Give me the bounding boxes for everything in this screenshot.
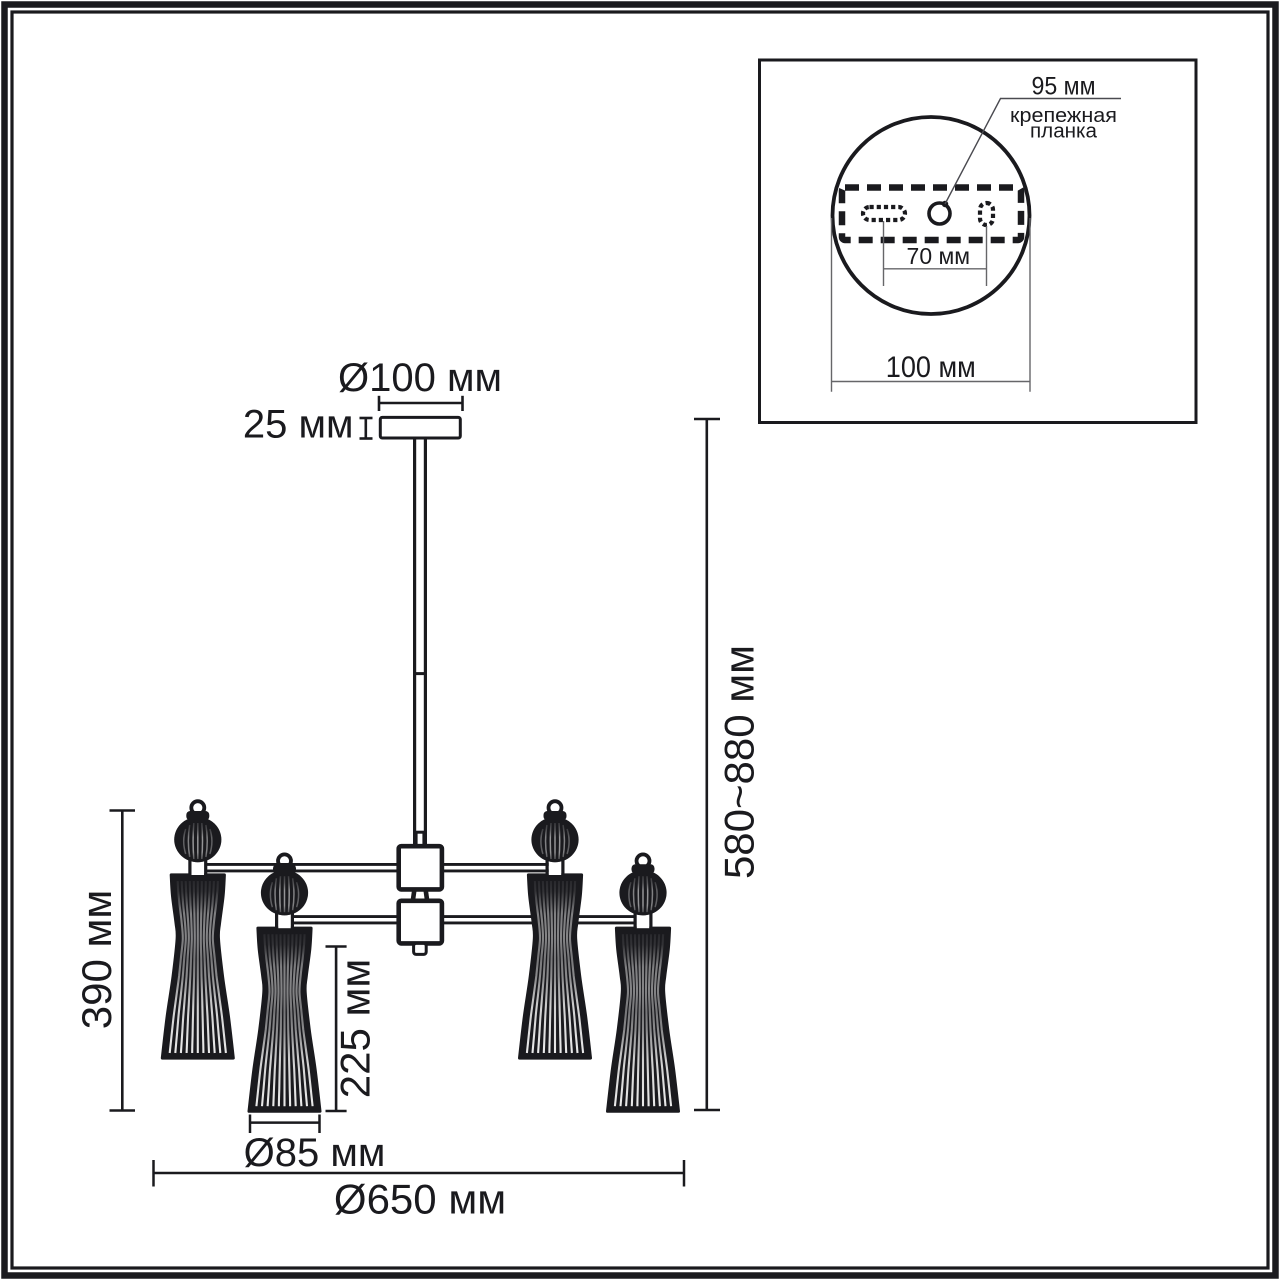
svg-text:планка: планка bbox=[1030, 119, 1098, 142]
svg-text:390 мм: 390 мм bbox=[73, 890, 120, 1030]
svg-text:Ø85 мм: Ø85 мм bbox=[244, 1131, 386, 1175]
svg-text:70 мм: 70 мм bbox=[907, 243, 971, 269]
svg-text:225 мм: 225 мм bbox=[332, 959, 379, 1099]
svg-text:95 мм: 95 мм bbox=[1032, 73, 1096, 101]
svg-text:100 мм: 100 мм bbox=[886, 351, 976, 384]
svg-text:25 мм: 25 мм bbox=[243, 403, 354, 447]
svg-text:580~880 мм: 580~880 мм bbox=[716, 645, 763, 879]
svg-text:Ø100 мм: Ø100 мм bbox=[338, 356, 502, 400]
svg-text:Ø650 мм: Ø650 мм bbox=[334, 1176, 506, 1223]
